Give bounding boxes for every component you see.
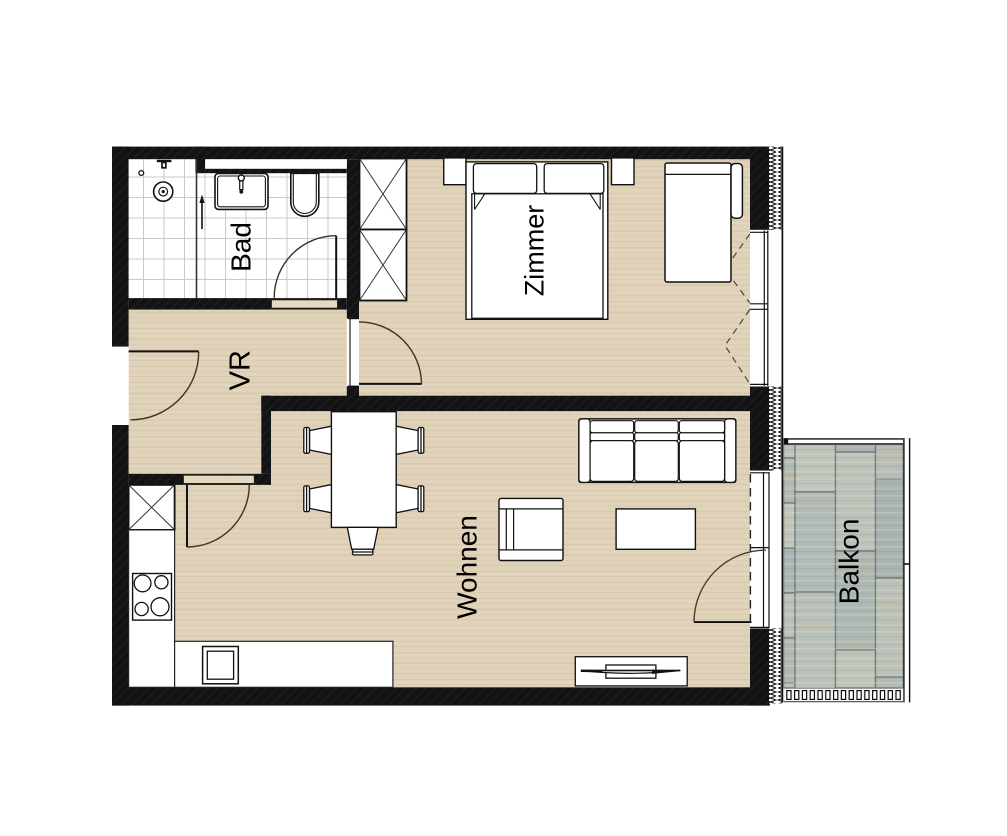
svg-text:Balkon: Balkon	[833, 519, 864, 605]
svg-text:Zimmer: Zimmer	[519, 205, 549, 296]
svg-text:Wohnen: Wohnen	[452, 515, 483, 619]
svg-text:VR: VR	[224, 350, 256, 390]
svg-text:Bad: Bad	[226, 222, 257, 272]
